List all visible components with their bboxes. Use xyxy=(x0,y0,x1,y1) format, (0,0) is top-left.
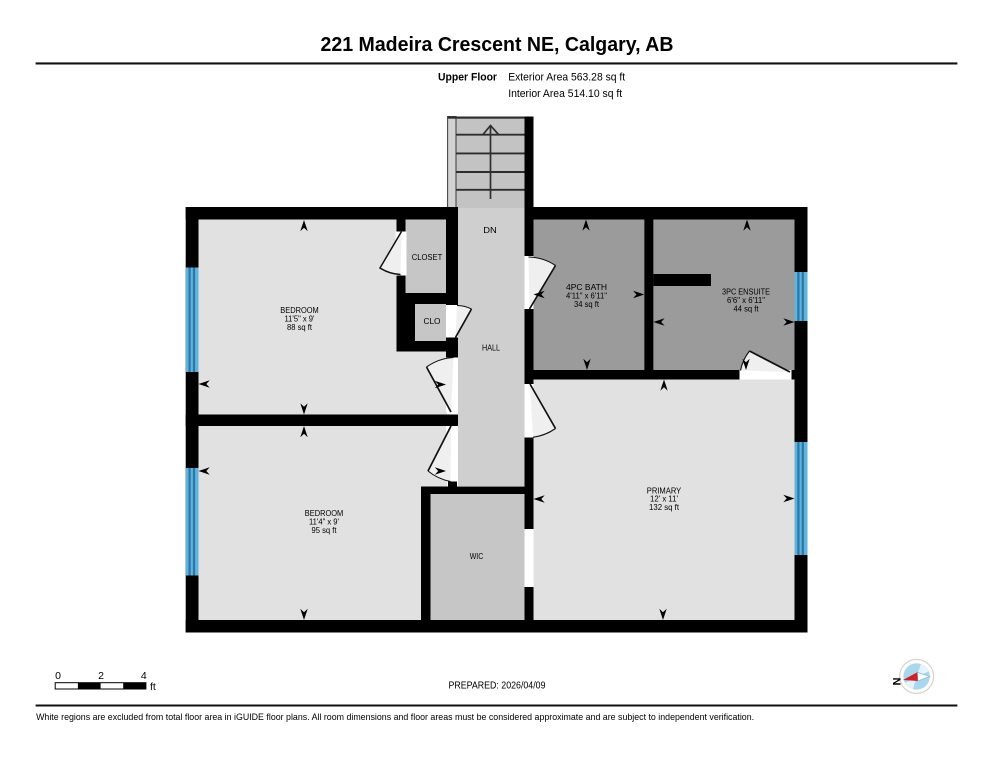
svg-text:N: N xyxy=(890,678,902,686)
svg-text:4: 4 xyxy=(141,670,147,682)
svg-text:221 Madeira Crescent NE, Calga: 221 Madeira Crescent NE, Calgary, AB xyxy=(321,33,674,56)
svg-text:Interior Area 514.10 sq ft: Interior Area 514.10 sq ft xyxy=(508,88,622,100)
svg-text:Exterior Area 563.28 sq ft: Exterior Area 563.28 sq ft xyxy=(508,71,625,83)
svg-text:88 sq ft: 88 sq ft xyxy=(287,322,313,332)
svg-text:White regions are excluded fro: White regions are excluded from total fl… xyxy=(36,712,754,723)
svg-text:2: 2 xyxy=(98,670,104,682)
svg-text:44 sq ft: 44 sq ft xyxy=(734,304,760,314)
svg-text:0: 0 xyxy=(55,670,61,682)
svg-text:Upper Floor: Upper Floor xyxy=(438,71,498,83)
svg-text:HALL: HALL xyxy=(482,343,500,353)
svg-text:WIC: WIC xyxy=(470,551,484,561)
svg-text:132 sq ft: 132 sq ft xyxy=(649,502,680,512)
svg-text:ft: ft xyxy=(150,681,156,693)
svg-text:CLO: CLO xyxy=(424,316,441,326)
svg-text:CLOSET: CLOSET xyxy=(412,252,443,262)
svg-text:34 sq ft: 34 sq ft xyxy=(574,299,600,309)
svg-text:DN: DN xyxy=(483,225,497,235)
svg-text:95 sq ft: 95 sq ft xyxy=(312,525,338,535)
svg-text:PREPARED: 2026/04/09: PREPARED: 2026/04/09 xyxy=(449,681,546,692)
